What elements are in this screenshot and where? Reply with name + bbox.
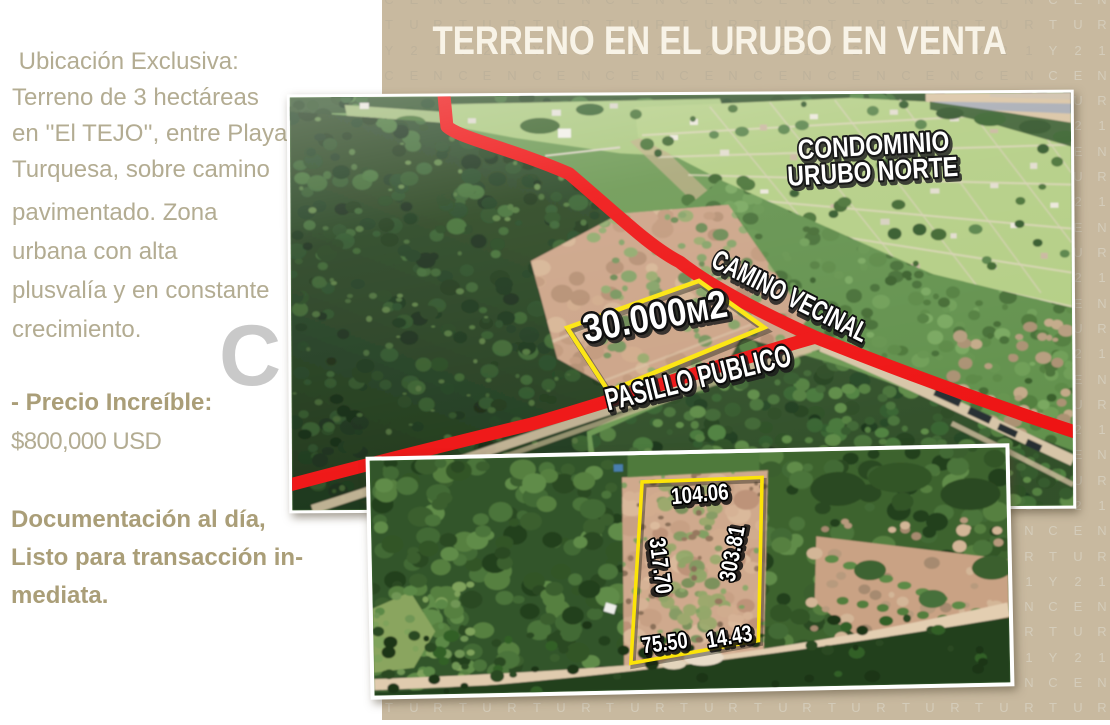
svg-text:U: U	[925, 700, 934, 715]
svg-text:R: R	[802, 700, 811, 715]
svg-text:E: E	[852, 68, 861, 83]
svg-text:C: C	[679, 68, 688, 83]
svg-text:1: 1	[1098, 118, 1105, 133]
svg-text:U: U	[482, 700, 491, 715]
svg-text:N: N	[1024, 523, 1033, 538]
svg-text:R: R	[581, 700, 590, 715]
svg-text:N: N	[433, 68, 442, 83]
svg-text:U: U	[1073, 549, 1082, 564]
svg-text:E: E	[779, 68, 788, 83]
svg-text:2: 2	[1074, 650, 1081, 665]
svg-text:U: U	[1073, 700, 1082, 715]
svg-text:U: U	[1073, 93, 1082, 108]
svg-text:E: E	[483, 0, 492, 7]
svg-text:R: R	[728, 700, 737, 715]
svg-text:C: C	[1048, 68, 1057, 83]
svg-text:N: N	[728, 0, 737, 7]
svg-text:R: R	[950, 700, 959, 715]
svg-text:Y: Y	[1049, 43, 1058, 58]
svg-text:2: 2	[1074, 118, 1081, 133]
svg-text:T: T	[1049, 549, 1057, 564]
svg-text:T: T	[533, 700, 541, 715]
svg-text:C: C	[753, 0, 762, 7]
svg-text:E: E	[1074, 144, 1083, 159]
svg-text:E: E	[557, 0, 566, 7]
svg-text:N: N	[1097, 144, 1106, 159]
svg-text:U: U	[778, 700, 787, 715]
svg-text:N: N	[433, 0, 442, 7]
svg-text:C: C	[901, 68, 910, 83]
svg-text:R: R	[1097, 549, 1106, 564]
svg-text:C: C	[532, 68, 541, 83]
svg-text:T: T	[754, 700, 762, 715]
svg-text:T: T	[975, 700, 983, 715]
svg-text:E: E	[1074, 0, 1083, 7]
svg-text:2: 2	[410, 43, 417, 58]
svg-text:T: T	[902, 700, 910, 715]
svg-text:N: N	[1097, 220, 1106, 235]
svg-text:E: E	[779, 0, 788, 7]
svg-text:C: C	[974, 68, 983, 83]
svg-text:T: T	[606, 700, 614, 715]
svg-text:R: R	[1097, 245, 1106, 260]
svg-text:T: T	[1049, 700, 1057, 715]
svg-text:1: 1	[1025, 43, 1032, 58]
svg-text:T: T	[1049, 624, 1057, 639]
svg-text:E: E	[705, 68, 714, 83]
svg-text:2: 2	[1074, 346, 1081, 361]
svg-text:R: R	[1024, 624, 1033, 639]
svg-text:R: R	[655, 700, 664, 715]
svg-text:N: N	[1024, 675, 1033, 690]
svg-text:E: E	[410, 68, 419, 83]
svg-text:2: 2	[1074, 194, 1081, 209]
svg-text:C: C	[384, 0, 393, 7]
svg-text:N: N	[1024, 599, 1033, 614]
svg-text:1: 1	[1098, 43, 1105, 58]
svg-text:R: R	[876, 700, 885, 715]
svg-text:N: N	[1097, 447, 1106, 462]
svg-text:E: E	[631, 68, 640, 83]
svg-text:1: 1	[1098, 574, 1105, 589]
svg-text:C: C	[384, 68, 393, 83]
svg-text:N: N	[1097, 68, 1106, 83]
svg-text:E: E	[1074, 220, 1083, 235]
svg-text:E: E	[926, 68, 935, 83]
svg-text:U: U	[1073, 17, 1082, 32]
svg-text:N: N	[507, 68, 516, 83]
svg-text:E: E	[852, 0, 861, 7]
svg-text:U: U	[999, 700, 1008, 715]
svg-text:E: E	[1000, 0, 1009, 7]
svg-text:U: U	[409, 17, 418, 32]
svg-text:1: 1	[1025, 650, 1032, 665]
svg-text:R: R	[1097, 473, 1106, 488]
svg-text:1: 1	[1098, 422, 1105, 437]
svg-text:N: N	[1097, 675, 1106, 690]
svg-text:C: C	[605, 68, 614, 83]
svg-text:N: N	[802, 68, 811, 83]
svg-text:C: C	[827, 68, 836, 83]
svg-text:1: 1	[1098, 498, 1105, 513]
svg-text:104.06: 104.06	[670, 480, 730, 510]
svg-text:E: E	[926, 0, 935, 7]
svg-text:N: N	[581, 0, 590, 7]
svg-text:C: C	[458, 0, 467, 7]
svg-text:N: N	[1097, 296, 1106, 311]
svg-text:N: N	[802, 0, 811, 7]
svg-text:E: E	[483, 68, 492, 83]
svg-text:E: E	[1074, 599, 1083, 614]
svg-text:T: T	[680, 700, 688, 715]
svg-text:Y: Y	[385, 43, 394, 58]
svg-text:R: R	[1097, 624, 1106, 639]
svg-text:1: 1	[1025, 574, 1032, 589]
svg-text:R: R	[1097, 700, 1106, 715]
svg-text:U: U	[1073, 624, 1082, 639]
svg-text:C: C	[458, 68, 467, 83]
svg-text:N: N	[1024, 68, 1033, 83]
svg-text:U: U	[704, 700, 713, 715]
svg-text:C: C	[1048, 599, 1057, 614]
svg-text:R: R	[433, 700, 442, 715]
svg-text:E: E	[631, 0, 640, 7]
svg-text:R: R	[1024, 17, 1033, 32]
svg-text:N: N	[655, 0, 664, 7]
svg-text:N: N	[876, 0, 885, 7]
svg-text:E: E	[410, 0, 419, 7]
svg-text:U: U	[409, 700, 418, 715]
svg-text:N: N	[876, 68, 885, 83]
svg-text:R: R	[1097, 169, 1106, 184]
svg-text:C: C	[901, 0, 910, 7]
svg-text:2: 2	[1074, 270, 1081, 285]
svg-text:N: N	[507, 0, 516, 7]
svg-text:U: U	[851, 700, 860, 715]
svg-text:C: C	[753, 68, 762, 83]
svg-text:1: 1	[1098, 194, 1105, 209]
svg-text:C: C	[532, 0, 541, 7]
svg-text:E: E	[1074, 675, 1083, 690]
svg-text:N: N	[655, 68, 664, 83]
svg-text:N: N	[1097, 599, 1106, 614]
svg-text:N: N	[1097, 372, 1106, 387]
svg-text:N: N	[1024, 0, 1033, 7]
svg-text:U: U	[556, 700, 565, 715]
svg-text:T: T	[828, 700, 836, 715]
svg-text:N: N	[950, 68, 959, 83]
svg-text:C: C	[679, 0, 688, 7]
svg-text:T: T	[1049, 17, 1057, 32]
svg-text:R: R	[1024, 700, 1033, 715]
svg-text:R: R	[1097, 17, 1106, 32]
svg-text:N: N	[950, 0, 959, 7]
svg-text:C: C	[605, 0, 614, 7]
svg-text:T: T	[385, 17, 393, 32]
svg-text:C: C	[1048, 675, 1057, 690]
svg-text:C: C	[1048, 0, 1057, 7]
svg-text:R: R	[507, 700, 516, 715]
svg-text:E: E	[1074, 68, 1083, 83]
svg-text:C: C	[1048, 523, 1057, 538]
svg-text:C: C	[974, 0, 983, 7]
svg-text:E: E	[705, 0, 714, 7]
svg-text:R: R	[1024, 549, 1033, 564]
svg-text:R: R	[1097, 397, 1106, 412]
svg-text:1: 1	[1098, 650, 1105, 665]
svg-text:N: N	[1097, 523, 1106, 538]
svg-text:2: 2	[1074, 43, 1081, 58]
svg-text:C: C	[827, 0, 836, 7]
svg-text:Y: Y	[1049, 650, 1058, 665]
svg-text:E: E	[1074, 523, 1083, 538]
svg-text:R: R	[1097, 93, 1106, 108]
svg-text:1: 1	[1098, 270, 1105, 285]
svg-text:1: 1	[1098, 346, 1105, 361]
svg-text:N: N	[728, 68, 737, 83]
svg-text:E: E	[557, 68, 566, 83]
svg-text:T: T	[385, 700, 393, 715]
svg-text:Y: Y	[1049, 574, 1058, 589]
svg-text:2: 2	[1074, 574, 1081, 589]
svg-text:T: T	[459, 700, 467, 715]
svg-text:N: N	[1097, 0, 1106, 7]
svg-text:E: E	[1000, 68, 1009, 83]
svg-text:R: R	[1097, 321, 1106, 336]
svg-text:U: U	[630, 700, 639, 715]
svg-text:N: N	[581, 68, 590, 83]
svg-text:U: U	[1073, 169, 1082, 184]
